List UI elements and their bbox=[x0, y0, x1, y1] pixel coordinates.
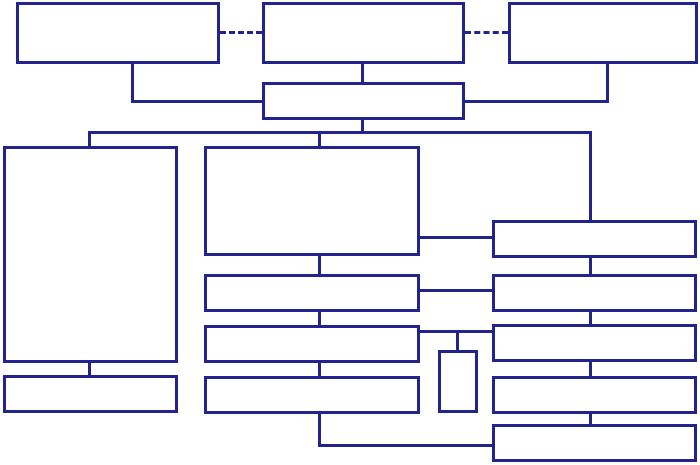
connector-mid4-bottom-drop bbox=[318, 414, 321, 447]
dashed-link-left-center bbox=[220, 31, 262, 34]
connector-row2-link bbox=[420, 289, 492, 292]
node-mid-row-2-label bbox=[207, 277, 417, 309]
connector-row3-link bbox=[420, 330, 492, 333]
node-right-row-5 bbox=[492, 424, 697, 462]
connector-right1-right2 bbox=[589, 258, 592, 274]
connector-right2-right3 bbox=[589, 312, 592, 324]
connector-pendant-drop bbox=[456, 330, 459, 350]
node-pendant-label bbox=[441, 353, 475, 410]
node-top-right-label bbox=[511, 5, 695, 61]
connector-topright-elbow bbox=[465, 100, 609, 103]
node-right-row-4-label bbox=[495, 379, 694, 411]
distribution-bus bbox=[88, 131, 592, 134]
connector-row1-link bbox=[420, 236, 492, 239]
connector-topleft-elbow bbox=[131, 100, 262, 103]
node-right-row-2 bbox=[492, 274, 697, 312]
connector-left-footer-drop bbox=[88, 363, 91, 375]
node-pendant bbox=[438, 350, 478, 413]
connector-topcenter-drop bbox=[361, 64, 364, 82]
node-right-row-1 bbox=[492, 220, 697, 258]
dashed-link-center-right bbox=[465, 31, 508, 34]
node-right-row-2-label bbox=[495, 277, 694, 309]
bus-drop-right bbox=[589, 131, 592, 220]
connector-topright-drop bbox=[606, 64, 609, 103]
flowchart-canvas bbox=[0, 0, 700, 465]
connector-mid3-mid4 bbox=[318, 363, 321, 376]
connector-right4-right5 bbox=[589, 414, 592, 424]
connector-bottom-elbow bbox=[318, 444, 492, 447]
node-top-center-label bbox=[265, 5, 462, 61]
node-hub bbox=[262, 82, 465, 120]
node-top-right bbox=[508, 2, 698, 64]
node-left-footer bbox=[3, 375, 178, 413]
connector-mid2-mid3 bbox=[318, 312, 321, 325]
node-right-row-5-label bbox=[495, 427, 694, 459]
node-mid-row-3 bbox=[204, 325, 420, 363]
node-hub-label bbox=[265, 85, 462, 117]
node-mid-row-4 bbox=[204, 376, 420, 414]
node-top-left bbox=[16, 2, 220, 64]
node-top-left-label bbox=[19, 5, 217, 61]
node-right-row-3-label bbox=[495, 327, 694, 359]
connector-topleft-drop bbox=[131, 64, 134, 103]
node-mid-row-3-label bbox=[207, 328, 417, 360]
connector-main-mid2 bbox=[318, 256, 321, 274]
node-right-row-4 bbox=[492, 376, 697, 414]
node-right-row-3 bbox=[492, 324, 697, 362]
node-mid-row-4-label bbox=[207, 379, 417, 411]
node-right-row-1-label bbox=[495, 223, 694, 255]
node-left-panel-label bbox=[6, 149, 175, 360]
connector-right3-right4 bbox=[589, 362, 592, 376]
node-main-panel bbox=[204, 146, 420, 256]
node-left-panel bbox=[3, 146, 178, 363]
bus-drop-left bbox=[88, 131, 91, 146]
node-main-panel-label bbox=[207, 149, 417, 253]
node-left-footer-label bbox=[6, 378, 175, 410]
bus-drop-middle bbox=[318, 131, 321, 146]
node-top-center bbox=[262, 2, 465, 64]
node-mid-row-2 bbox=[204, 274, 420, 312]
